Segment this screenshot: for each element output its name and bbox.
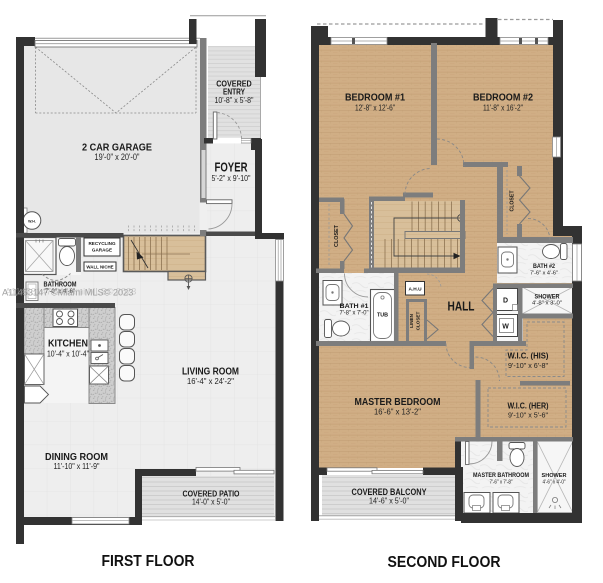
svg-text:BATH #2: BATH #2 [533,263,555,270]
svg-text:COVERED BALCONY: COVERED BALCONY [352,487,427,497]
svg-text:WALL NICHE: WALL NICHE [86,264,113,269]
svg-text:9'-10" x 5'-6": 9'-10" x 5'-6" [508,411,548,420]
svg-text:14'-0" x 5'-0": 14'-0" x 5'-0" [192,498,230,507]
svg-text:W: W [502,324,509,331]
svg-text:BEDROOM #2: BEDROOM #2 [473,92,533,104]
svg-text:9'-10" x 6'-8": 9'-10" x 6'-8" [508,361,548,370]
svg-text:10'-4" x 10'-4": 10'-4" x 10'-4" [47,349,89,359]
svg-text:A.H.U: A.H.U [408,287,422,293]
svg-text:BEDROOM #1: BEDROOM #1 [345,92,405,104]
svg-text:FIRST FLOOR: FIRST FLOOR [102,553,195,570]
svg-text:11'-8" x 16'-2": 11'-8" x 16'-2" [483,104,523,113]
svg-text:LINEN: LINEN [409,313,414,327]
svg-text:16'-4" x 24'-2": 16'-4" x 24'-2" [187,376,234,386]
svg-text:4'-6" x 4'-0": 4'-6" x 4'-0" [543,480,566,486]
svg-text:12'-8" x 12'-6": 12'-8" x 12'-6" [355,104,395,113]
svg-text:CLOSET: CLOSET [510,190,516,212]
svg-text:7'-6" x 7'-8": 7'-6" x 7'-8" [490,480,513,486]
svg-text:GARAGE: GARAGE [92,248,112,253]
svg-text:5'-2" x 9'-10": 5'-2" x 9'-10" [212,173,251,183]
svg-text:W.H.: W.H. [28,220,36,224]
svg-text:10'-8" x 5'-8": 10'-8" x 5'-8" [215,96,254,105]
svg-text:19'-0" x 20'-0": 19'-0" x 20'-0" [95,152,140,162]
svg-text:7'-8" x 7'-0": 7'-8" x 7'-0" [340,311,369,317]
svg-text:SHOWER: SHOWER [542,473,568,479]
svg-text:4'-8" x 3'-0": 4'-8" x 3'-0" [532,301,562,307]
svg-text:BATH #1: BATH #1 [340,303,369,310]
svg-text:CLOSET: CLOSET [334,224,340,247]
svg-text:HALL: HALL [448,300,475,314]
svg-text:W.I.C. (HIS): W.I.C. (HIS) [508,352,549,361]
svg-text:CLOSET: CLOSET [416,311,421,330]
svg-text:D: D [503,298,508,305]
svg-text:16'-6" x 13'-2": 16'-6" x 13'-2" [374,408,421,417]
svg-text:W.I.C. (HER): W.I.C. (HER) [508,402,549,411]
svg-text:SECOND FLOOR: SECOND FLOOR [388,554,501,571]
svg-text:RECYCLING: RECYCLING [88,241,115,246]
svg-text:7'-6" x 4'-6": 7'-6" x 4'-6" [530,271,558,277]
svg-text:A11453147 ©Miami MLS© 2023: A11453147 ©Miami MLS© 2023 [5,287,136,297]
svg-text:MASTER BATHROOM: MASTER BATHROOM [473,472,529,479]
svg-text:ENTRY: ENTRY [223,87,245,97]
svg-text:14'-6" x 5'-0": 14'-6" x 5'-0" [369,497,409,506]
svg-text:MASTER BEDROOM: MASTER BEDROOM [355,396,441,408]
svg-text:TUB: TUB [377,313,388,319]
svg-text:11'-10" x 11'-9": 11'-10" x 11'-9" [54,461,100,471]
